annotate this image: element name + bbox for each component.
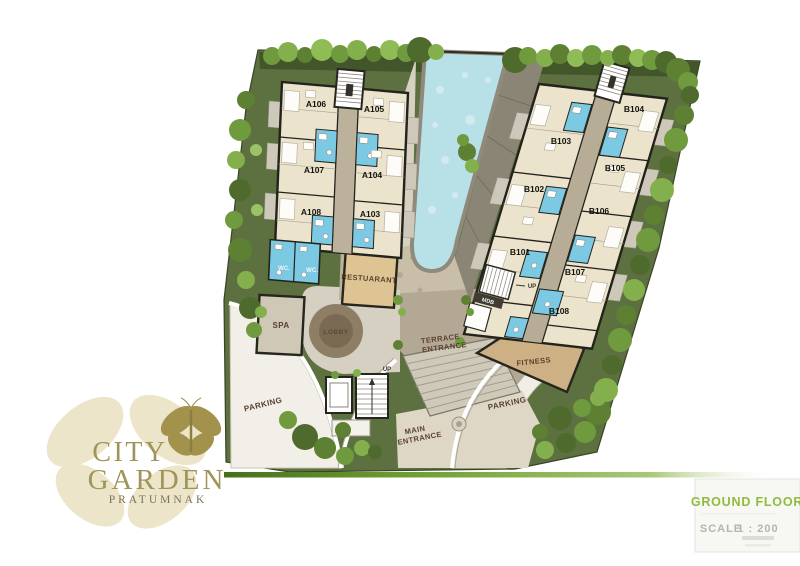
unit-label-a105: A105 — [364, 104, 385, 114]
up-b-label: UP — [528, 284, 536, 290]
logo-subtitle: PRATUMNAK — [109, 494, 208, 506]
planter-inner — [456, 421, 462, 427]
logo: CITY GARDEN PRATUMNAK — [34, 381, 227, 541]
unit-label-a104: A104 — [362, 170, 383, 180]
building-a-stairs — [334, 69, 364, 109]
building-a-wc-block — [269, 240, 321, 284]
unit-label-a107: A107 — [304, 165, 325, 175]
lobby-label: LOBBY — [323, 329, 348, 336]
up-lobby-label: UP — [383, 367, 391, 373]
unit-label-b105: B105 — [605, 163, 626, 173]
spa-label: SPA — [272, 321, 289, 330]
unit-label-b108: B108 — [549, 306, 570, 316]
unit-label-a106: A106 — [306, 99, 327, 109]
floor-plan-page: MDB UP UP — [0, 0, 800, 566]
unit-label-a103: A103 — [360, 209, 381, 219]
floor-plan-svg: MDB UP UP — [0, 0, 800, 566]
wc-right-label: WC. — [306, 268, 318, 274]
scale-bar — [742, 536, 774, 540]
wc-left-label: WC. — [278, 266, 290, 272]
floor-title: GROUND FLOOR — [691, 495, 800, 509]
unit-label-b107: B107 — [565, 267, 586, 277]
scale-value: 1 : 200 — [737, 523, 778, 535]
unit-label-b103: B103 — [551, 136, 572, 146]
logo-title-line2: GARDEN — [88, 464, 227, 496]
unit-label-a108: A108 — [301, 207, 322, 217]
title-block: GROUND FLOOR SCALE 1 : 200 — [691, 479, 800, 552]
scale-fineprint — [745, 544, 771, 547]
green-divider-bar — [224, 472, 772, 478]
unit-label-b104: B104 — [624, 104, 645, 114]
unit-label-b101: B101 — [510, 247, 531, 257]
scale-label: SCALE — [700, 523, 742, 535]
unit-label-b106: B106 — [589, 206, 610, 216]
unit-label-b102: B102 — [524, 184, 545, 194]
